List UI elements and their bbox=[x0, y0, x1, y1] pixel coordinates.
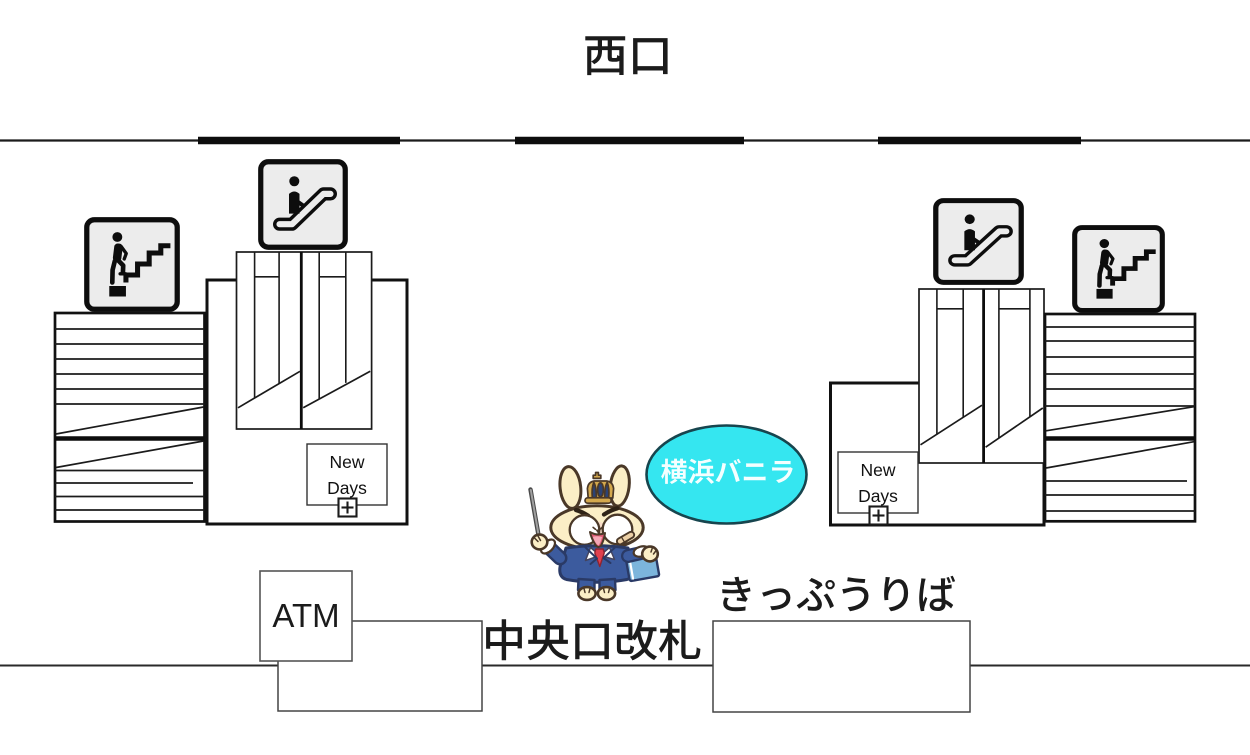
svg-text:New: New bbox=[860, 460, 895, 480]
svg-text:New: New bbox=[329, 452, 364, 472]
svg-text:Days: Days bbox=[858, 486, 898, 506]
svg-text:ATM: ATM bbox=[272, 597, 339, 634]
svg-text:Days: Days bbox=[327, 478, 367, 498]
